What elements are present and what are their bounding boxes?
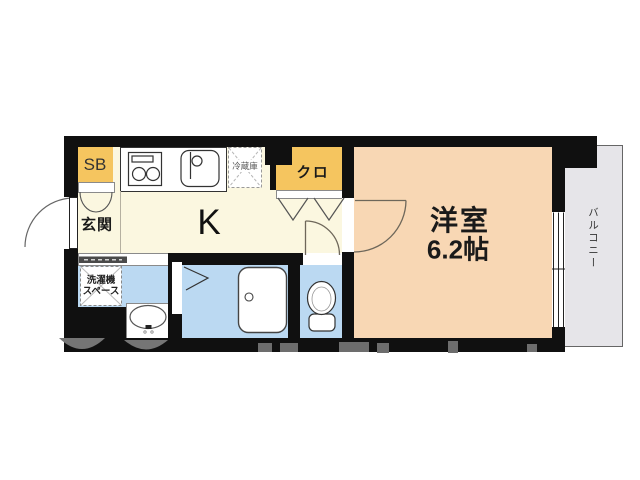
refrigerator-label: 冷蔵庫 [231, 160, 259, 172]
toilet-floor [300, 265, 342, 338]
wall-wet-top [170, 253, 303, 265]
wall-block-bottom-left [64, 307, 126, 338]
washroom-sliding-door-track [78, 253, 172, 266]
balcony-label: バルコニー [586, 207, 601, 297]
floorplan: SB 玄関 K 冷蔵庫 クロ 洋室 6.2帖 バルコニー 洗濯機 スペース [0, 0, 640, 480]
wall-room-left-upper [342, 147, 354, 198]
wall-closet-jut [265, 147, 292, 165]
shoe-box-front [78, 182, 115, 193]
laundry-label-line1: 洗濯機 [87, 275, 116, 286]
wall-closet-left [270, 165, 276, 190]
wall-corner-block [552, 136, 597, 168]
entrance-door-opening [64, 197, 78, 249]
window-opening [552, 212, 565, 327]
wall-washroom-bath [168, 253, 182, 340]
wall-right-lower [552, 327, 565, 352]
room-door-opening [342, 198, 354, 252]
laundry-label-line2: スペース [83, 286, 120, 297]
closet-front [276, 190, 344, 199]
closet-label: クロ [297, 162, 330, 183]
shoe-box-label: SB [84, 155, 107, 175]
wall-top [64, 136, 565, 147]
laundry-space-label: 洗濯機 スペース [83, 275, 120, 297]
toilet-door-opening [303, 253, 342, 265]
kitchen-label: K [197, 203, 220, 243]
bathroom-floor [182, 265, 288, 338]
wall-bottom [64, 338, 565, 352]
wall-room-left-lower [342, 252, 354, 338]
western-room-size: 6.2帖 [427, 230, 489, 267]
wall-bath-toilet [288, 265, 300, 338]
wall-left-upper [64, 147, 78, 197]
vanity-niche [126, 303, 172, 340]
entrance-label: 玄関 [81, 214, 113, 235]
kitchen-counter [120, 147, 227, 192]
